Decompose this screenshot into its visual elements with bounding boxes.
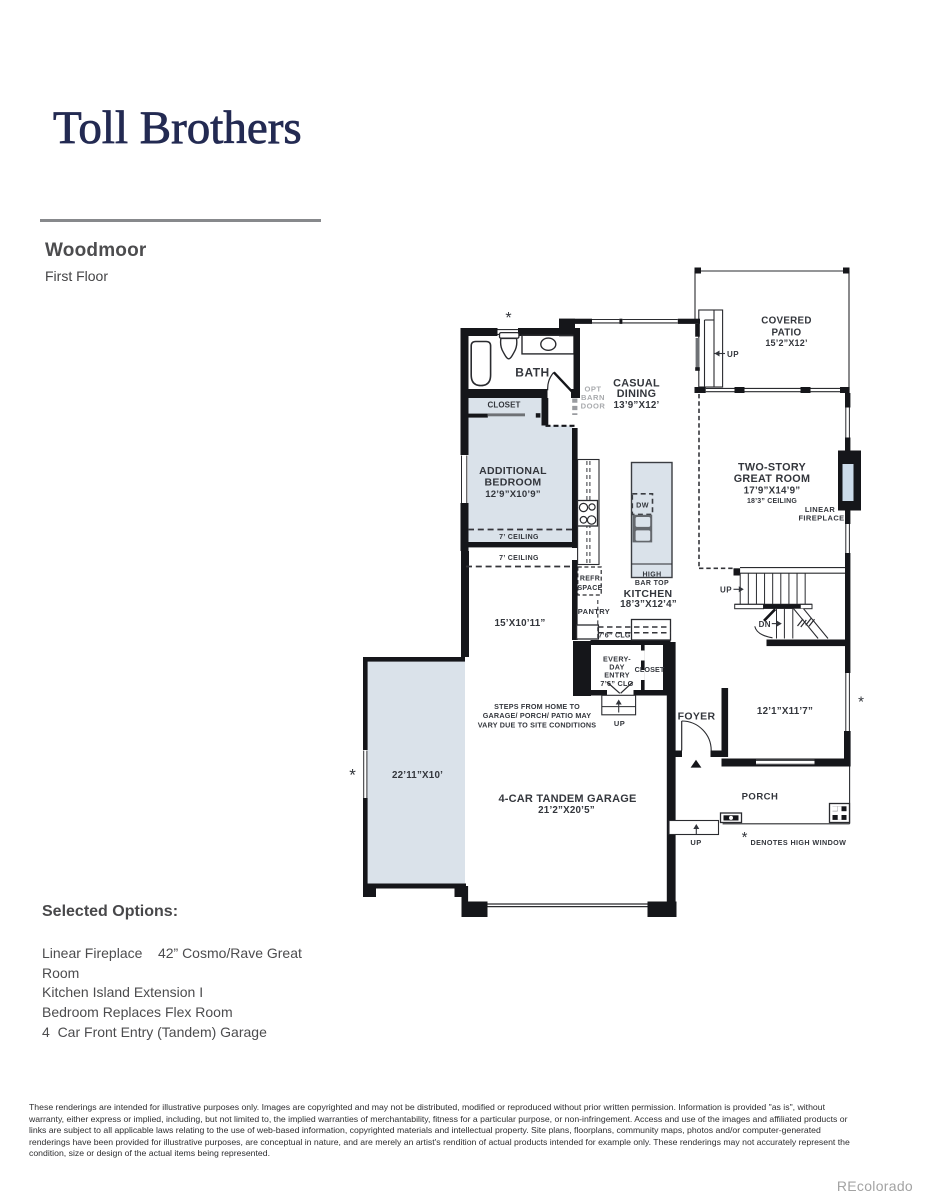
svg-text:15’2”X12’: 15’2”X12’ [765, 338, 807, 348]
svg-text:12’9”X10’9”: 12’9”X10’9” [485, 489, 541, 500]
svg-text:GREAT ROOM: GREAT ROOM [734, 473, 811, 485]
svg-text:KITCHEN: KITCHEN [624, 588, 673, 600]
svg-text:DOOR: DOOR [581, 402, 606, 411]
svg-text:HIGH: HIGH [642, 572, 661, 579]
svg-text:18’3”X12’4”: 18’3”X12’4” [620, 599, 677, 610]
svg-text:BAR TOP: BAR TOP [635, 580, 669, 587]
svg-text:BEDROOM: BEDROOM [485, 477, 542, 489]
svg-text:PANTRY: PANTRY [578, 607, 610, 616]
svg-text:12’1”X11’7”: 12’1”X11’7” [757, 706, 813, 717]
svg-text:7’ CEILING: 7’ CEILING [499, 555, 539, 562]
svg-text:21’2”X20’5”: 21’2”X20’5” [538, 805, 595, 816]
svg-text:TWO-STORY: TWO-STORY [738, 462, 807, 474]
svg-text:ADDITIONAL: ADDITIONAL [479, 465, 547, 477]
svg-text:*: * [505, 310, 511, 327]
svg-text:UP: UP [720, 586, 732, 595]
svg-text:15’X10’11”: 15’X10’11” [494, 618, 545, 629]
svg-text:DINING: DINING [617, 388, 657, 400]
svg-text:*: * [742, 829, 748, 846]
svg-text:13’9”X12’: 13’9”X12’ [614, 400, 660, 411]
svg-text:SPACE: SPACE [577, 585, 602, 592]
svg-text:UP: UP [690, 838, 701, 847]
svg-text:FOYER: FOYER [678, 710, 716, 722]
svg-text:FIREPLACE: FIREPLACE [798, 514, 844, 523]
svg-text:COVERED: COVERED [761, 316, 812, 327]
svg-text:7’ CEILING: 7’ CEILING [499, 534, 539, 541]
svg-text:CLOSET: CLOSET [635, 665, 665, 674]
svg-text:UP: UP [614, 719, 625, 728]
svg-text:GARAGE/ PORCH/ PATIO MAY: GARAGE/ PORCH/ PATIO MAY [483, 711, 592, 720]
svg-text:UP: UP [727, 350, 739, 359]
svg-text:REFR: REFR [580, 576, 600, 583]
svg-text:CLOSET: CLOSET [487, 401, 520, 410]
svg-text:DN: DN [759, 620, 771, 629]
svg-text:STEPS FROM HOME TO: STEPS FROM HOME TO [494, 702, 580, 711]
svg-text:22’11”X10’: 22’11”X10’ [392, 770, 443, 781]
svg-text:4-CAR TANDEM GARAGE: 4-CAR TANDEM GARAGE [498, 793, 636, 805]
svg-text:*: * [349, 766, 356, 785]
svg-text:BATH: BATH [515, 366, 549, 380]
svg-text:VARY DUE TO SITE CONDITIONS: VARY DUE TO SITE CONDITIONS [478, 720, 597, 729]
svg-text:*: * [858, 694, 864, 711]
svg-text:18’3” CEILING: 18’3” CEILING [747, 498, 797, 505]
svg-text:PATIO: PATIO [772, 327, 802, 338]
svg-text:DW: DW [636, 500, 649, 509]
svg-text:17’9”X14’9”: 17’9”X14’9” [744, 486, 801, 497]
svg-text:DENOTES HIGH WINDOW: DENOTES HIGH WINDOW [751, 838, 847, 847]
svg-text:PORCH: PORCH [742, 792, 779, 803]
